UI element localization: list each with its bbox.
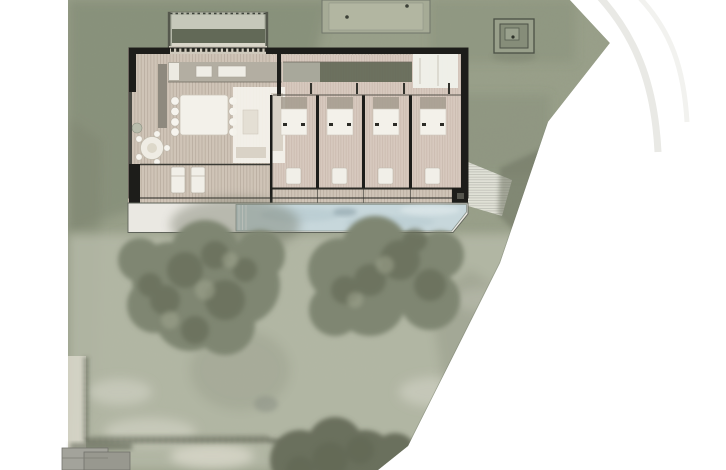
tall-cabinet — [158, 64, 167, 128]
north-wall-storage — [169, 46, 267, 54]
dining-table — [171, 95, 237, 136]
corridor-gray-strip — [283, 62, 320, 82]
rock-feature — [254, 396, 278, 412]
entry-canopy — [168, 12, 268, 48]
green-roof-band — [320, 62, 412, 82]
living-sofa-area — [233, 87, 285, 163]
site-plan-canvas — [0, 0, 726, 470]
kitchen-counter — [168, 62, 282, 82]
white-courtyard — [413, 53, 458, 88]
garden-structure — [492, 19, 536, 62]
outbuilding — [62, 443, 132, 470]
upper-court — [322, 0, 430, 33]
